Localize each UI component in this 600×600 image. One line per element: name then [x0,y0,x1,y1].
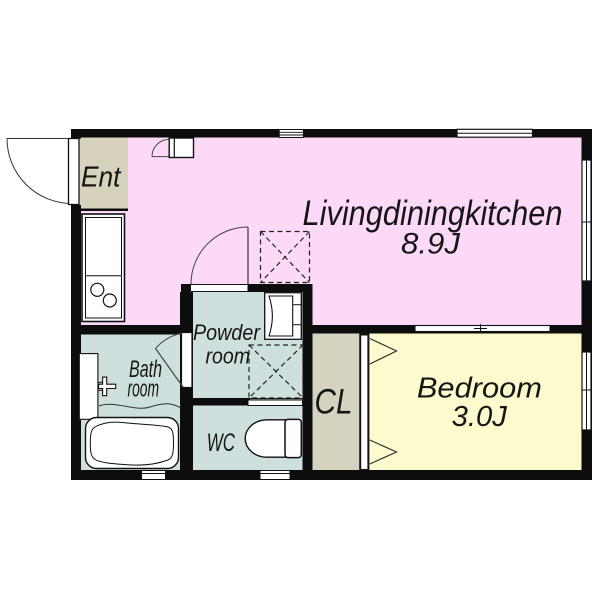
svg-text:Bedroom: Bedroom [417,373,542,405]
svg-text:WC: WC [207,429,236,457]
svg-text:Ent: Ent [81,162,122,194]
svg-text:8.9J: 8.9J [401,228,460,261]
svg-text:Powder: Powder [193,320,261,345]
svg-text:room: room [206,344,251,369]
svg-text:room: room [128,376,160,403]
svg-text:CL: CL [315,382,353,421]
svg-text:3.0J: 3.0J [452,401,508,433]
